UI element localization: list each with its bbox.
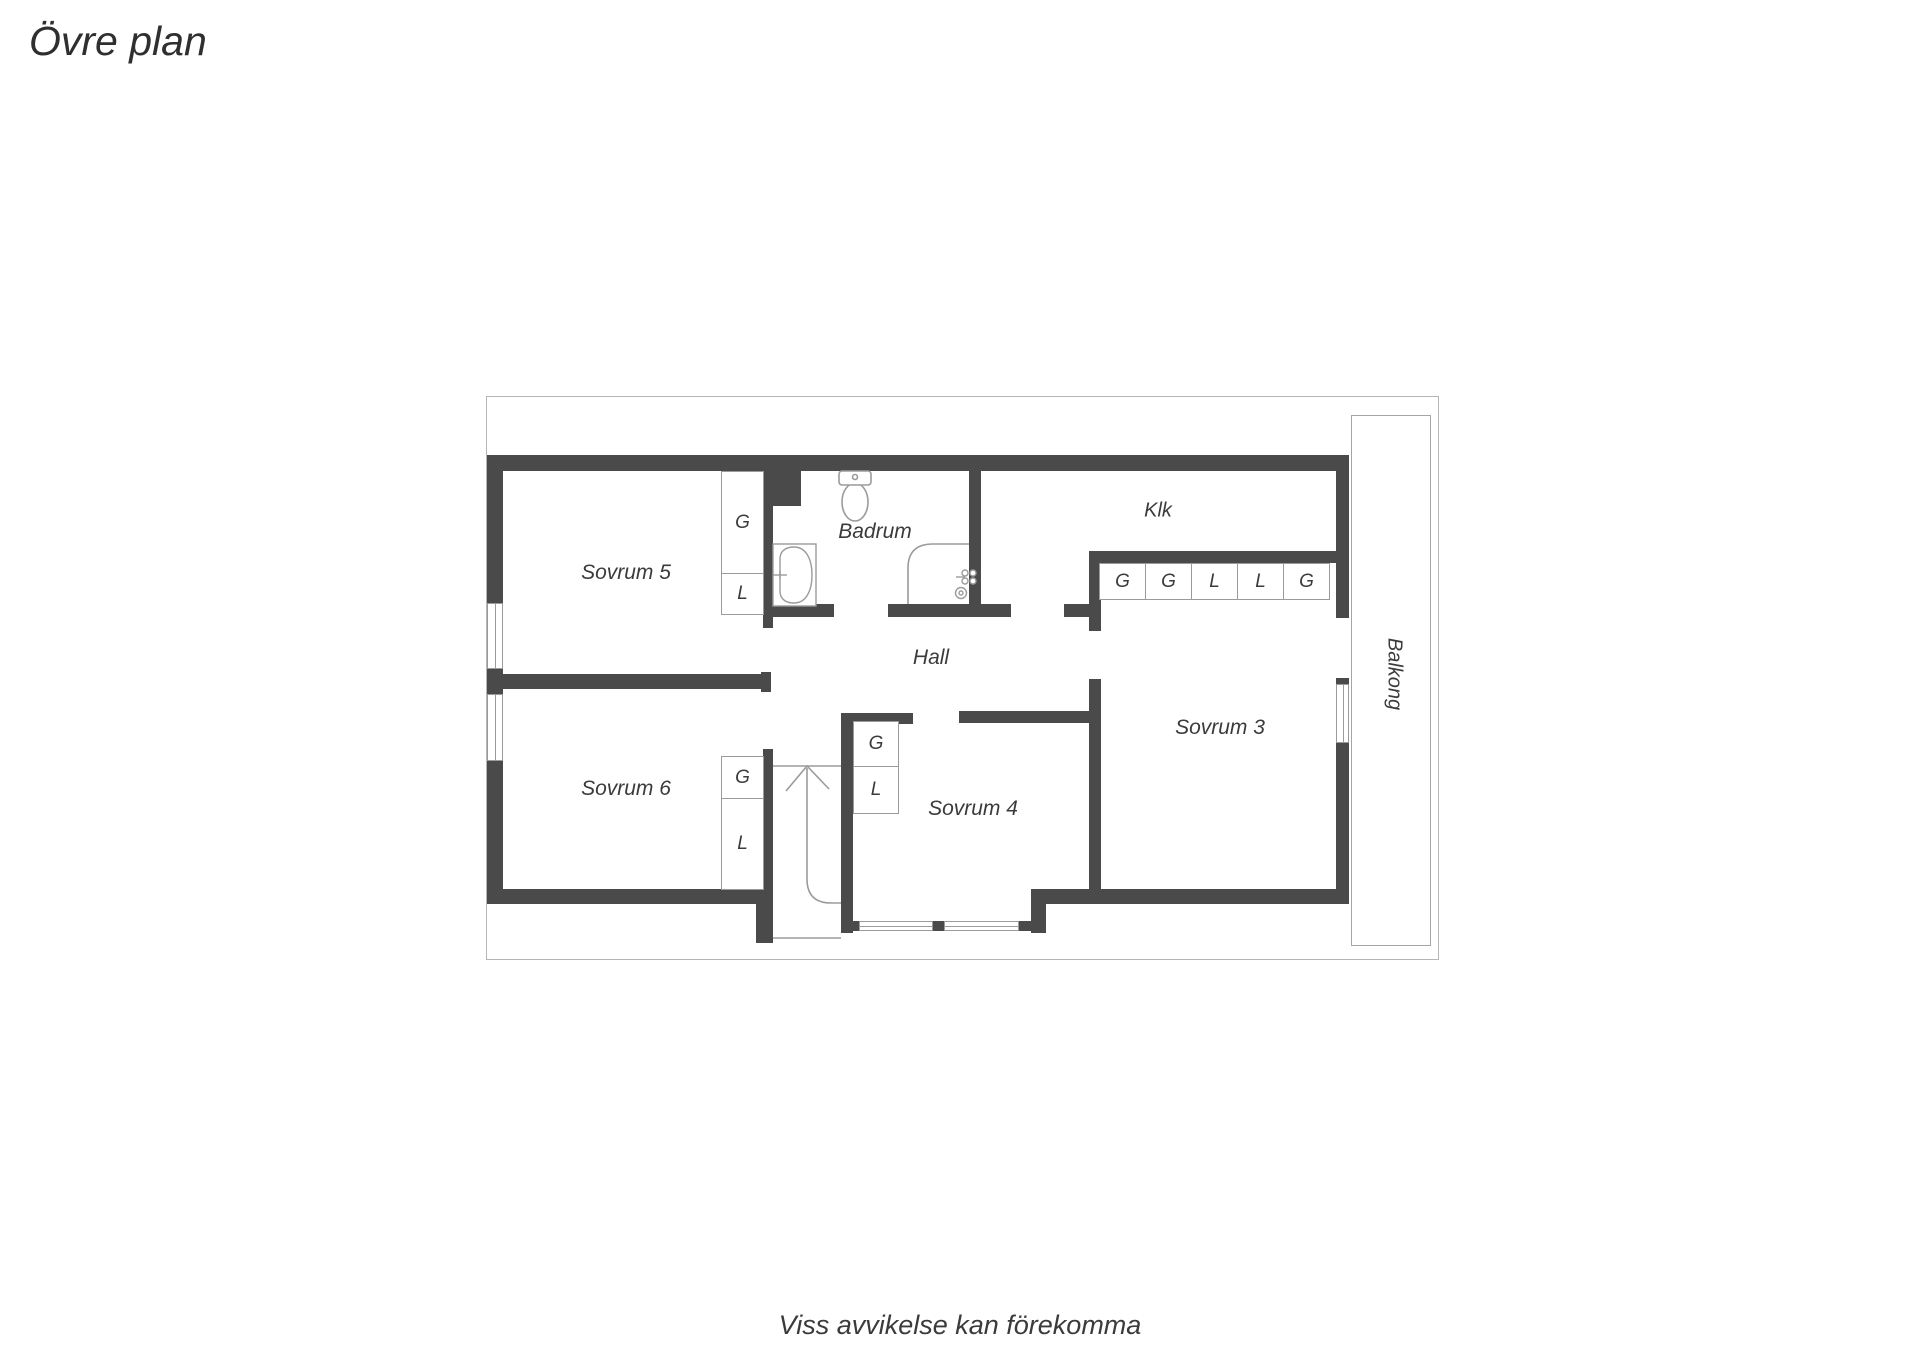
room-label-balkong: Balkong <box>1383 638 1406 710</box>
disclaimer-text: Viss avvikelse kan förekomma <box>0 1310 1920 1341</box>
room-label-sovrum4: Sovrum 4 <box>928 797 1018 821</box>
fixtures-layer <box>487 397 1438 959</box>
room-label-sovrum3: Sovrum 3 <box>1175 716 1265 740</box>
room-label-hall: Hall <box>913 646 949 670</box>
shower-mixer-icon <box>956 570 977 599</box>
toilet-icon <box>839 471 871 521</box>
room-label-badrum: Badrum <box>838 520 912 544</box>
room-label-sovrum6: Sovrum 6 <box>581 777 671 801</box>
sink-icon <box>773 544 816 606</box>
room-label-klk: Klk <box>1144 500 1172 523</box>
floor-plan: G L G L G L G G L L G <box>486 396 1439 960</box>
stairs-icon <box>773 766 841 938</box>
page-title: Övre plan <box>29 18 207 65</box>
room-label-sovrum5: Sovrum 5 <box>581 561 671 585</box>
